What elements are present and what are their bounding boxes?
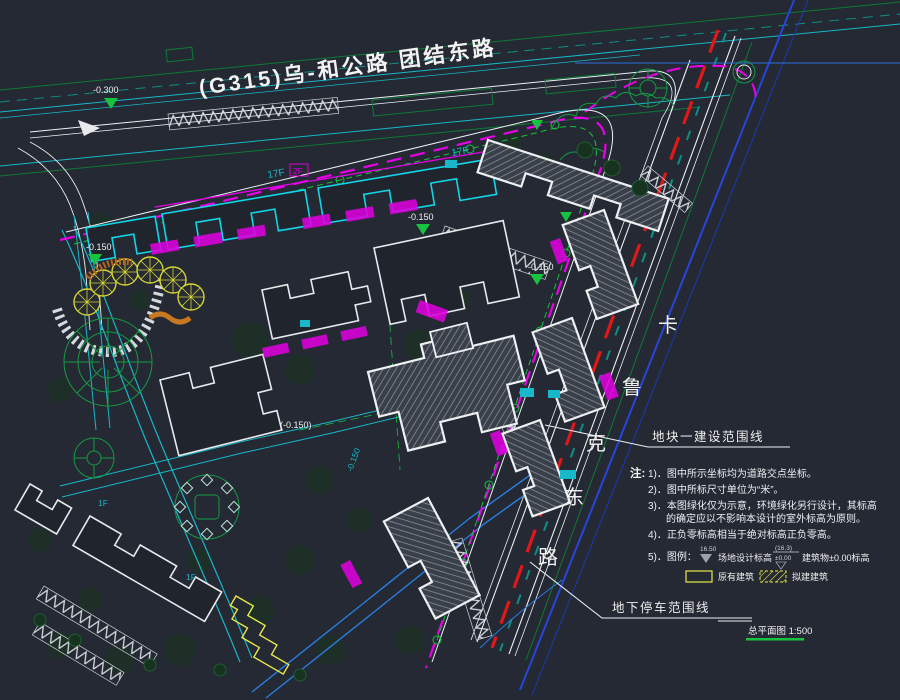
legend-bldg-elev-label: 建筑物±0.00标高: [802, 552, 869, 563]
elevation-label: -0.300: [93, 85, 119, 95]
cad-site-plan-screenshot: -0.300 -0.150 -0.150 -0.150 (-0.150) -0.…: [0, 0, 900, 700]
low-rise-label: 1F: [186, 572, 196, 582]
note-item: 3)．本图绿化仅为示意，环境绿化另行设计，其标高: [648, 499, 877, 512]
legend-site-elev-value: 16.50: [700, 546, 717, 553]
legend-proposed-label: 拟建建筑: [792, 571, 828, 582]
legend-bldg-elev-bottom: ±0.00: [775, 555, 792, 562]
caption-text: 总平面图 1:500: [748, 625, 812, 637]
note-item: 4)．正负零标高相当于绝对标高正负零高。: [648, 528, 837, 541]
plot-boundary-annotation: 地块一建设范围线: [652, 429, 764, 444]
notes-heading: 注:: [630, 466, 645, 480]
low-rise-label: 1F: [98, 498, 108, 508]
elevation-label: -0.150: [408, 212, 434, 222]
site-plan-canvas[interactable]: -0.300 -0.150 -0.150 -0.150 (-0.150) -0.…: [0, 0, 900, 700]
legend-site-elev-label: 场地设计标高: [718, 552, 772, 563]
east-road-char: 东: [564, 486, 584, 509]
caption-underline: [746, 638, 804, 641]
elevation-label: -0.150: [528, 262, 554, 272]
note-item: 5)．图例：: [648, 550, 697, 563]
note-item: 2)．图中所标尺寸单位为“米”。: [648, 483, 784, 496]
east-road-char: 克: [586, 432, 606, 455]
elevation-label: (-0.150): [280, 420, 312, 430]
east-road-char: 鲁: [622, 376, 642, 399]
underground-parking-annotation: 地下停车范围线: [612, 600, 710, 615]
east-road-char: 路: [538, 546, 558, 569]
note-item: 的确定应以不影响本设计的室外标高为原则。: [666, 512, 866, 525]
legend-bldg-elev-top: (16.3): [775, 545, 792, 552]
legend-proposed-icon: [760, 571, 786, 582]
note-item: 1)．图中所示坐标均为道路交点坐标。: [648, 467, 817, 480]
legend-existing-label: 原有建筑: [718, 571, 754, 582]
east-road-char: 卡: [658, 314, 678, 337]
elevation-label: -0.150: [86, 242, 112, 252]
podium-label: 2F: [293, 166, 303, 176]
